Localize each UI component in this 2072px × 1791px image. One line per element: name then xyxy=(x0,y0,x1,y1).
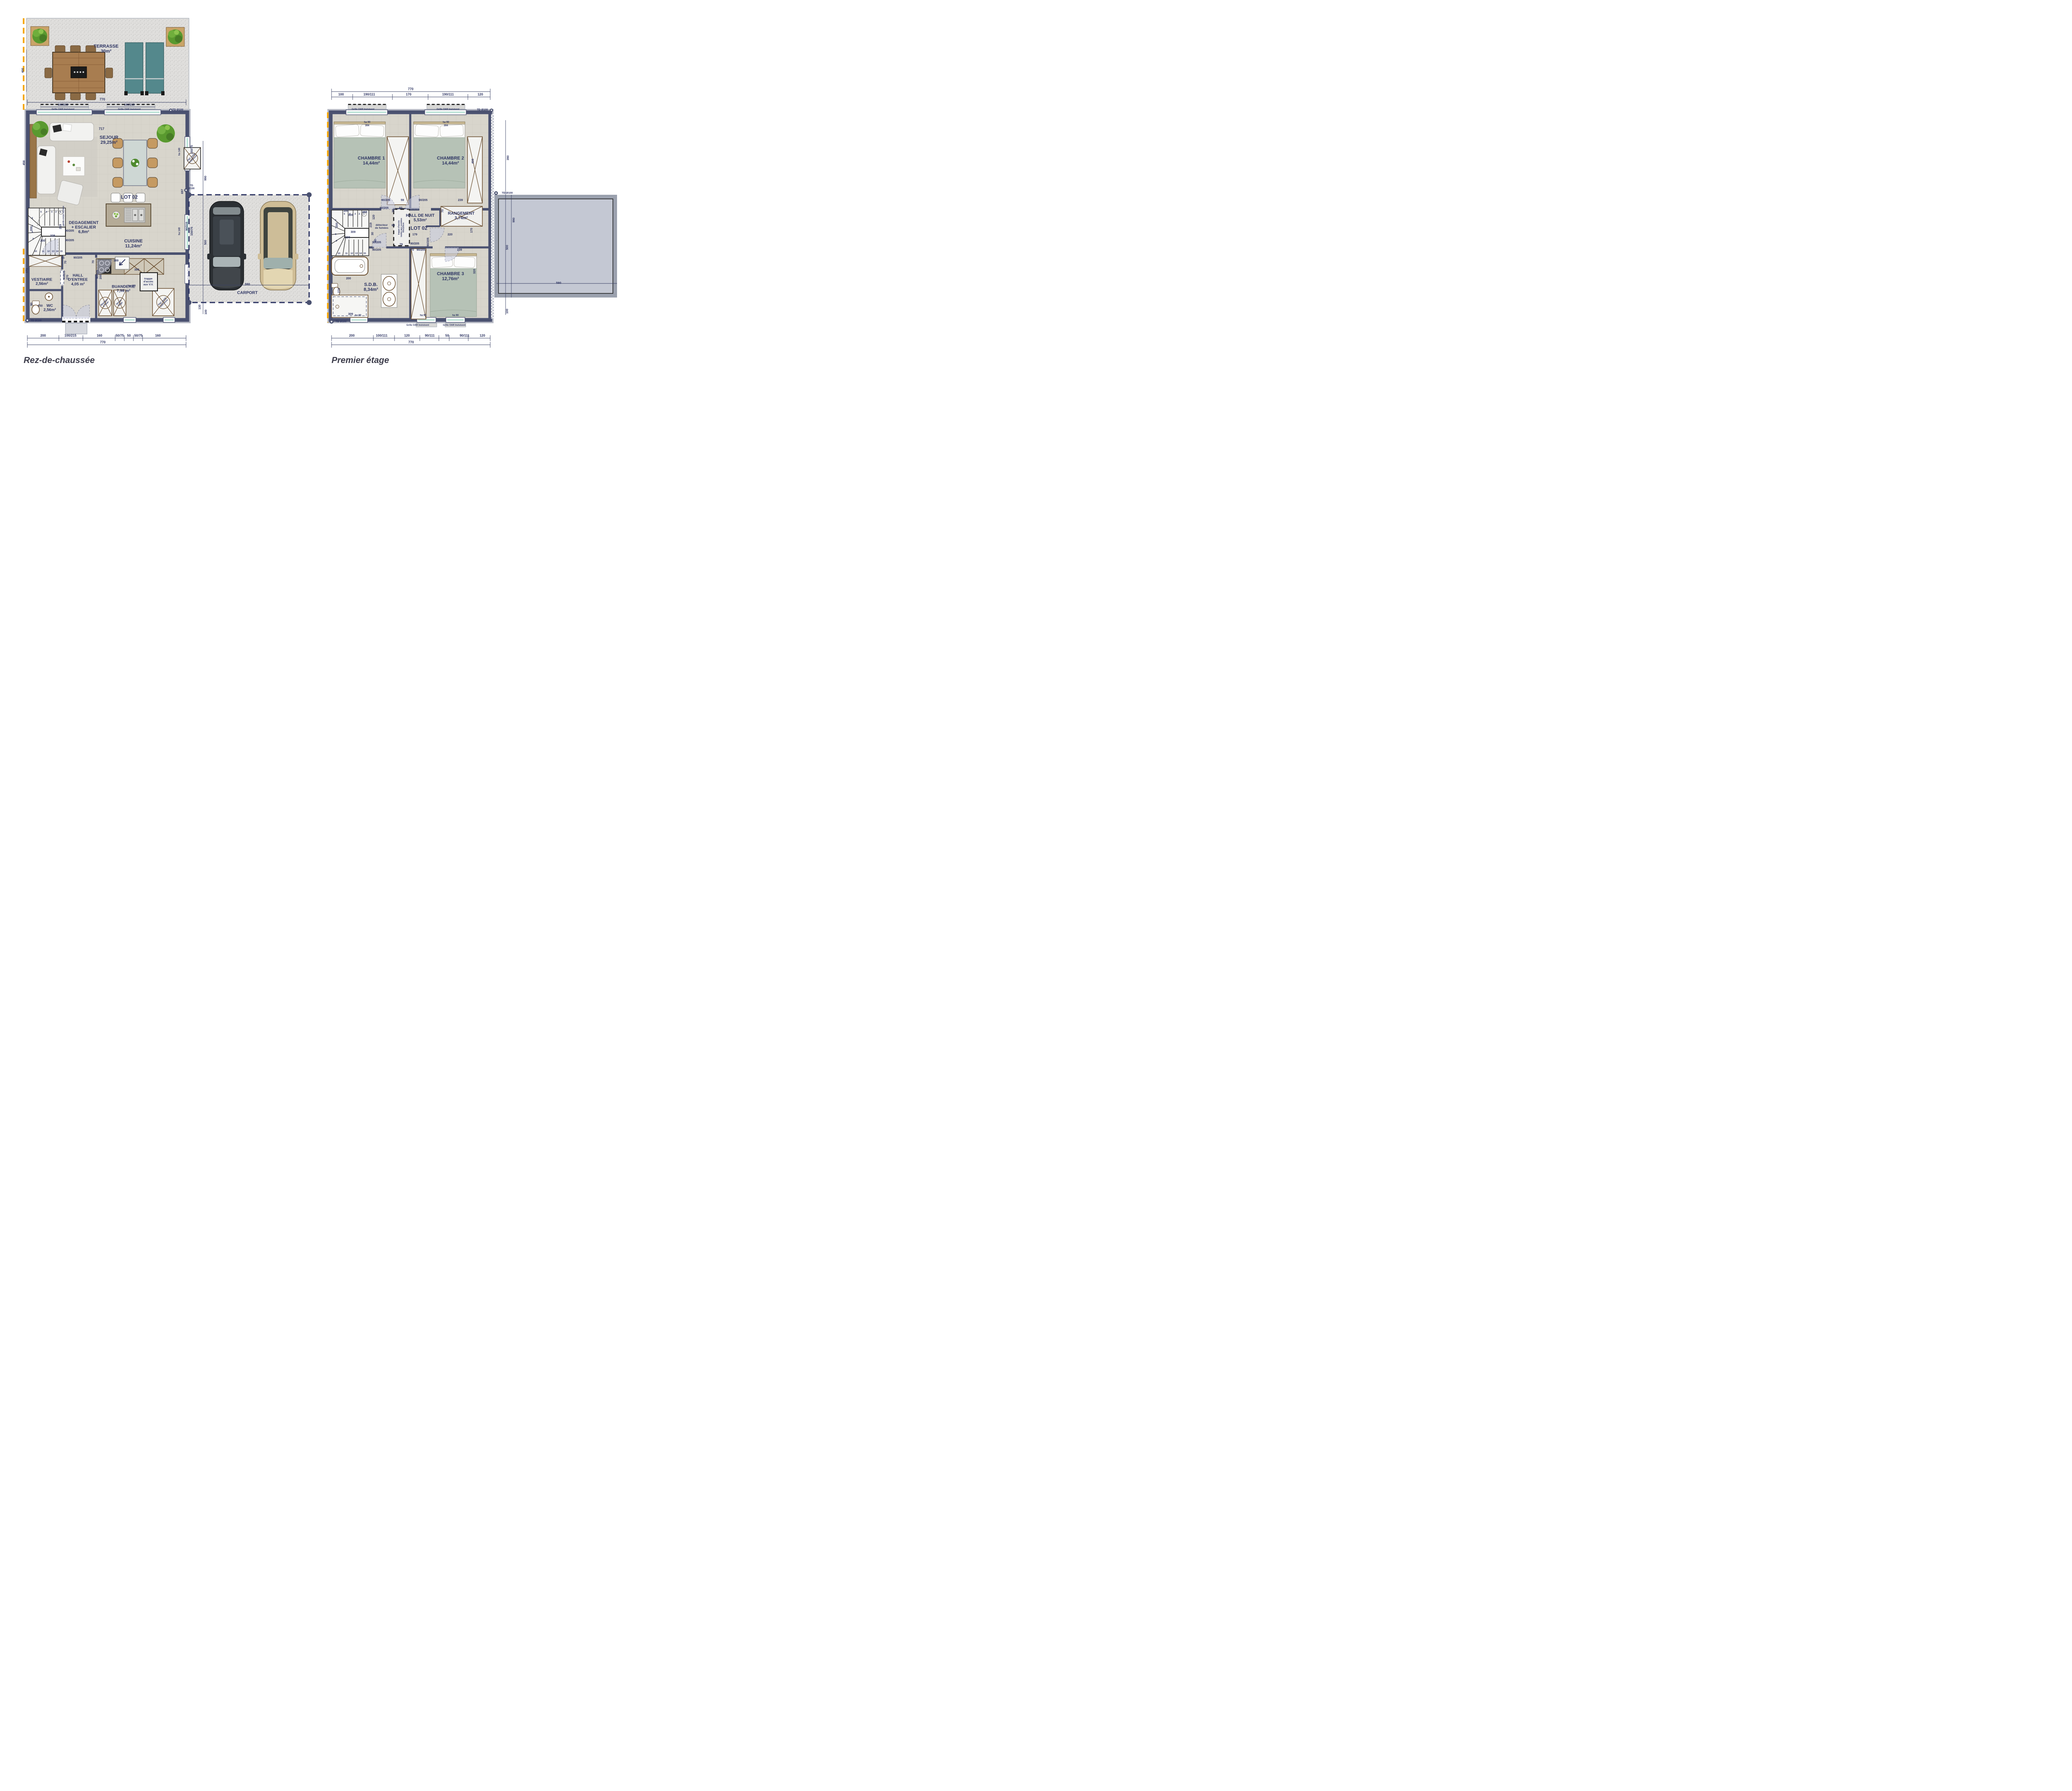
chambre3-furniture xyxy=(411,249,477,319)
rangement-storage xyxy=(441,206,482,226)
trappe-combles-box xyxy=(394,209,409,246)
title-ground-floor: Rez-de-chaussée xyxy=(24,356,95,365)
flat-roof-square xyxy=(494,195,617,298)
vestiaire-wardrobe xyxy=(29,256,61,266)
carport xyxy=(186,192,312,305)
planter-plant-right xyxy=(166,27,184,46)
floor-plan-drawing xyxy=(0,0,650,387)
car-dark xyxy=(207,201,246,290)
terrace-dining-set xyxy=(45,46,113,100)
trappe-vv-box xyxy=(140,273,157,291)
terrace xyxy=(24,18,189,111)
ground-floor-plan xyxy=(24,18,312,348)
car-beige xyxy=(258,201,298,290)
insulation-band xyxy=(491,114,494,319)
title-first-floor: Premier étage xyxy=(332,356,389,365)
planter-plant-left xyxy=(31,27,49,46)
floor-plan-sheet: TERRASSE 30m²400770190/215190/215Grille … xyxy=(0,0,650,387)
sliding-door xyxy=(61,270,64,285)
house-ground-floor xyxy=(24,104,201,334)
pac-exterieure xyxy=(184,148,201,169)
first-floor-plan xyxy=(328,89,617,348)
stairs-ff xyxy=(332,210,369,256)
